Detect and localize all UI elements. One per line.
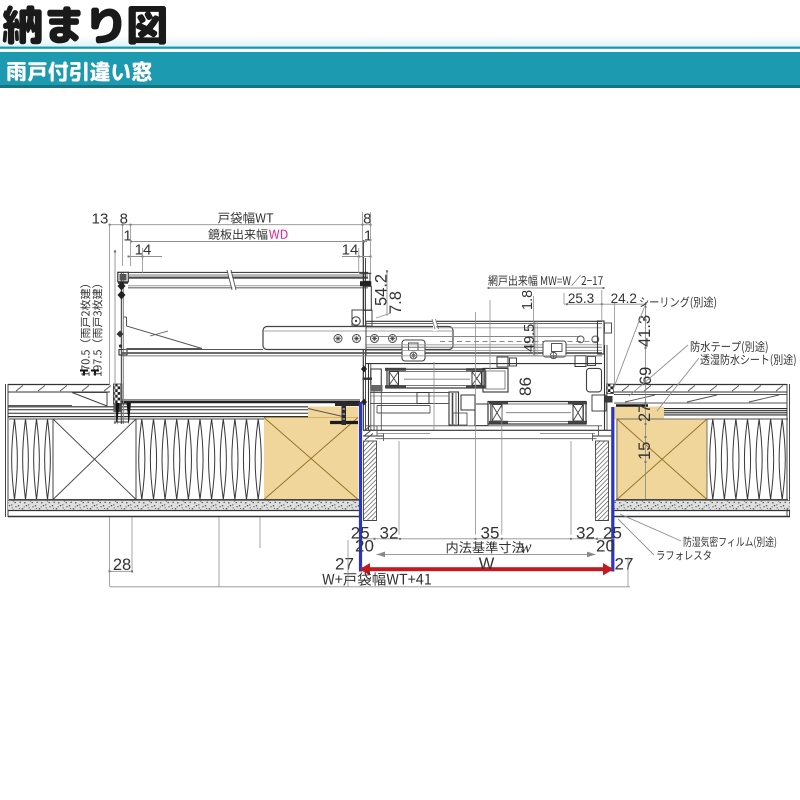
svg-text:w: w [520, 537, 531, 556]
svg-text:27: 27 [615, 555, 634, 574]
svg-text:32: 32 [576, 523, 595, 542]
svg-text:32: 32 [380, 523, 399, 542]
svg-text:1.8: 1.8 [520, 290, 536, 310]
svg-text:7.8: 7.8 [387, 291, 405, 314]
svg-text:20: 20 [596, 537, 615, 556]
svg-text:86: 86 [516, 377, 535, 396]
svg-text:27: 27 [636, 404, 654, 422]
svg-text:15: 15 [636, 442, 654, 460]
svg-text:35: 35 [481, 523, 500, 542]
svg-text:27: 27 [335, 555, 354, 574]
svg-text:41.3: 41.3 [636, 315, 654, 347]
svg-text:W: W [479, 555, 495, 573]
svg-text:28: 28 [113, 556, 131, 574]
svg-text:20: 20 [355, 537, 374, 556]
svg-text:49.5: 49.5 [522, 324, 538, 352]
svg-text:13: 13 [92, 211, 109, 228]
